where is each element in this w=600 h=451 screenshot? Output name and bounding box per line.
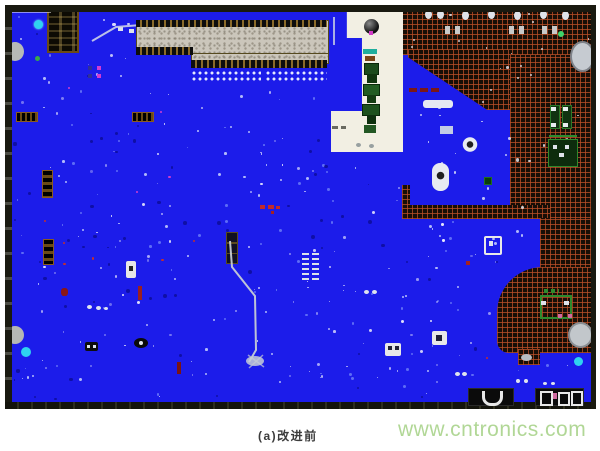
figure-caption: (a)改进前 (258, 427, 378, 444)
edge-via (462, 372, 467, 376)
pad-white (553, 145, 557, 149)
board-edge-left (5, 5, 12, 409)
edge-via (516, 379, 520, 383)
bottom-connector-1-shell (482, 391, 503, 406)
edge-via (543, 382, 547, 385)
connector-pin-row-bottom-right (191, 60, 327, 68)
pad-white (541, 301, 546, 305)
edge-via (551, 382, 555, 385)
connector-pin-row-top (136, 20, 327, 27)
board-edge-top (5, 5, 596, 12)
connector-pin-row-bottom-left (136, 47, 193, 55)
pad-white (565, 145, 569, 149)
pink-pad (553, 393, 557, 399)
pad-white (564, 301, 569, 305)
bottom-connector-2-pin (571, 391, 583, 406)
pad-white (563, 123, 568, 127)
edge-via (524, 379, 528, 383)
pad-white (551, 107, 556, 111)
pad-white (563, 107, 568, 111)
board-edge-right (591, 5, 596, 409)
pcb-board (5, 5, 596, 409)
figure-page: (a)改进前 www.cntronics.com (0, 0, 600, 451)
trace-top-left (92, 25, 141, 41)
pad-white (551, 123, 556, 127)
edge-via (455, 372, 460, 376)
watermark-text: www.cntronics.com (398, 418, 586, 442)
trace-center (230, 241, 256, 362)
pad-white (559, 153, 564, 157)
bottom-connector-2-pin (558, 392, 570, 406)
bottom-connector-2-pin (540, 391, 553, 406)
